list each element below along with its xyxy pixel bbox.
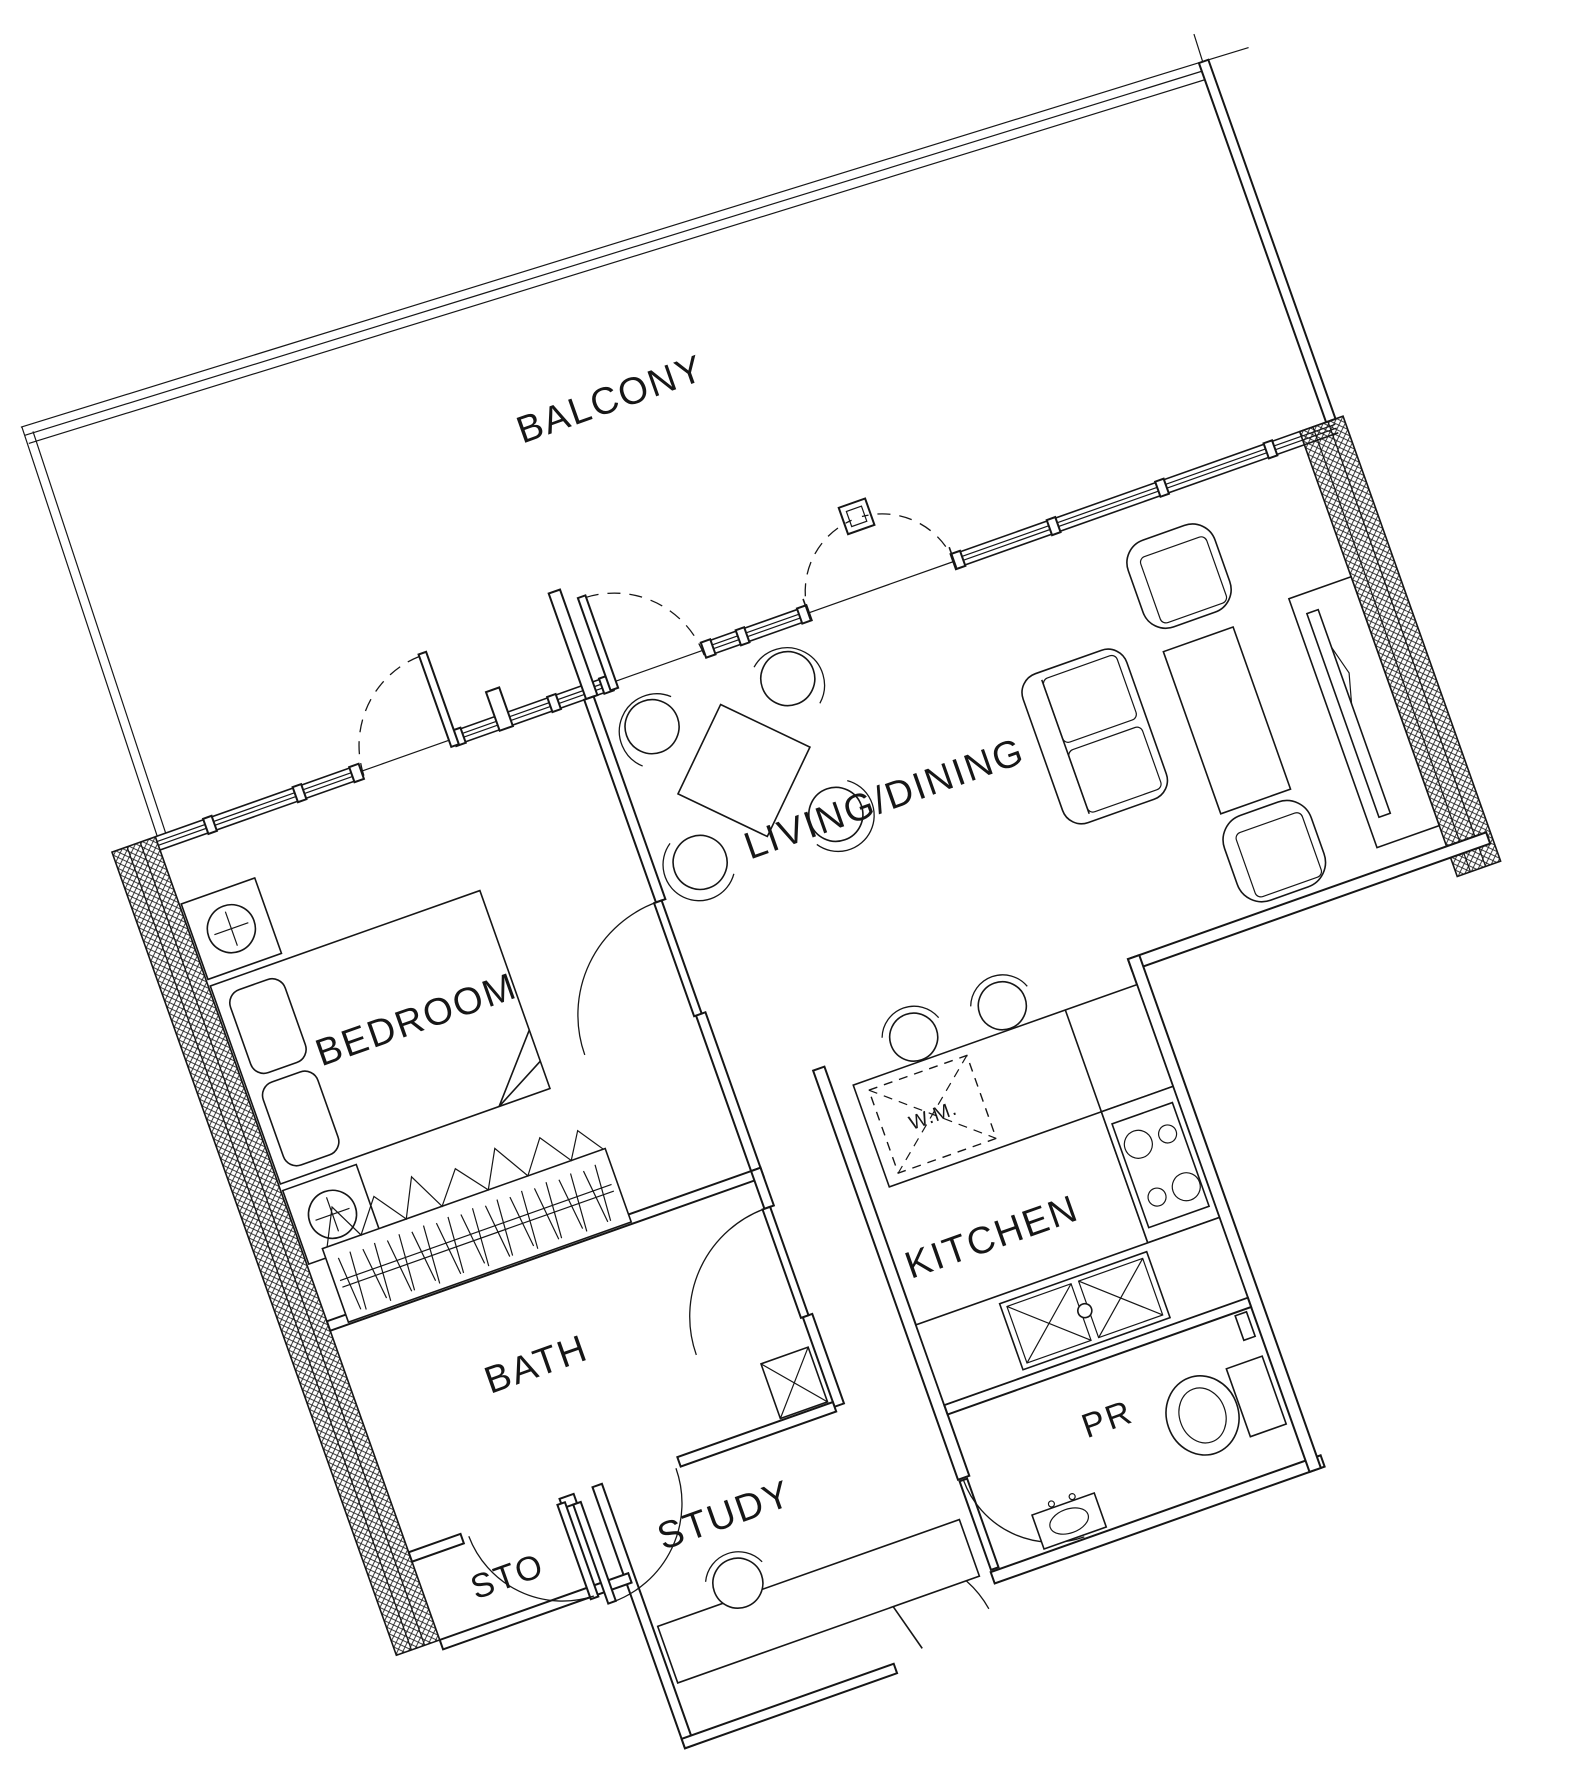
study-label: STUDY bbox=[652, 1473, 797, 1559]
balcony-label: BALCONY bbox=[511, 347, 709, 452]
powder-room-label: PR bbox=[1077, 1393, 1138, 1446]
rotated-plan: BALCONY LIVING/DINING BEDROOM KITCHEN BA… bbox=[0, 0, 1589, 1785]
kitchen-label: KITCHEN bbox=[900, 1188, 1084, 1288]
roll-holder-icon bbox=[1235, 1312, 1255, 1341]
toilet bbox=[1155, 1352, 1287, 1465]
french-door-right-arc bbox=[862, 493, 956, 591]
french-door-left-arc bbox=[784, 520, 878, 618]
balcony-right-wall bbox=[1199, 60, 1336, 422]
bath-door-leaf bbox=[763, 1207, 809, 1318]
kitchen-fixtures bbox=[815, 932, 1248, 1405]
living-dining-furniture bbox=[606, 460, 1444, 1088]
bedroom-door-leaf bbox=[654, 900, 702, 1016]
armchair bbox=[1120, 517, 1237, 634]
balcony-outline bbox=[13, 0, 1375, 836]
armchair bbox=[1216, 793, 1333, 909]
bath-label: BATH bbox=[479, 1327, 593, 1402]
bedroom-balcony-door-leaf bbox=[419, 652, 459, 747]
floor-plan-drawing: BALCONY LIVING/DINING BEDROOM KITCHEN BA… bbox=[0, 0, 1589, 1785]
door-post bbox=[839, 498, 875, 534]
sofa bbox=[1017, 644, 1173, 830]
floor-plan-sheet: BALCONY LIVING/DINING BEDROOM KITCHEN BA… bbox=[0, 0, 1589, 1785]
coffee-table bbox=[1163, 627, 1290, 814]
